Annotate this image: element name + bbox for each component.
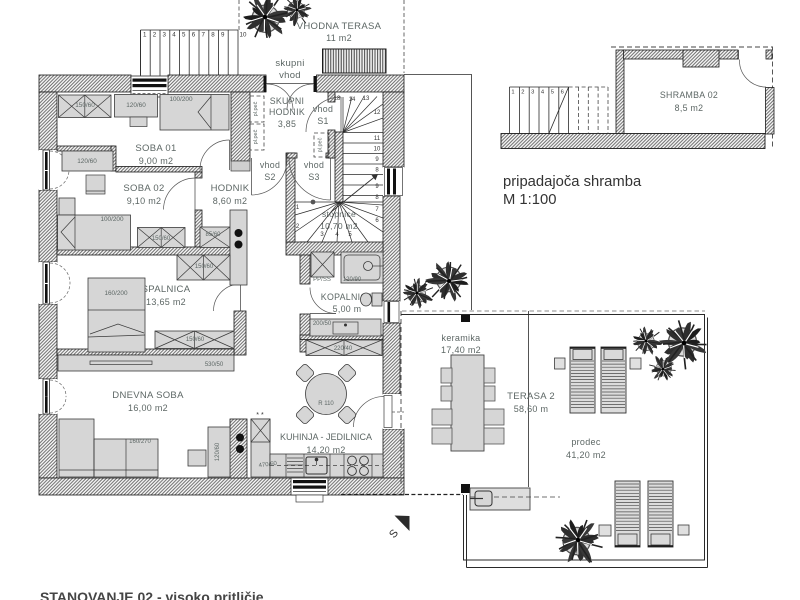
svg-text:TERASA 2: TERASA 2 <box>507 391 555 402</box>
svg-text:4: 4 <box>172 32 176 39</box>
svg-text:5: 5 <box>551 90 554 96</box>
svg-text:10: 10 <box>240 32 247 39</box>
svg-text:530/50: 530/50 <box>205 362 224 368</box>
svg-text:150/60: 150/60 <box>195 264 214 270</box>
svg-text:S2: S2 <box>264 172 275 182</box>
svg-text:85/60: 85/60 <box>205 232 221 238</box>
svg-text:150/60: 150/60 <box>75 102 95 109</box>
svg-text:160/200: 160/200 <box>104 290 128 297</box>
svg-text:prodec: prodec <box>571 437 601 447</box>
svg-text:1: 1 <box>511 90 514 96</box>
svg-text:3: 3 <box>162 32 166 39</box>
svg-text:11 m2: 11 m2 <box>326 33 352 43</box>
svg-text:SKUPNI: SKUPNI <box>270 96 305 106</box>
svg-text:13: 13 <box>363 96 370 102</box>
svg-text:10,70 m2: 10,70 m2 <box>320 221 358 231</box>
svg-text:5: 5 <box>182 32 186 39</box>
svg-text:pl.peč: pl.peč <box>318 137 324 152</box>
svg-text:vhod: vhod <box>313 104 333 114</box>
svg-text:pl.peč: pl.peč <box>253 101 259 116</box>
svg-text:150/60: 150/60 <box>152 236 171 242</box>
svg-text:keramika: keramika <box>442 333 481 343</box>
svg-text:3: 3 <box>531 90 534 96</box>
svg-text:S1: S1 <box>317 116 328 126</box>
svg-text:R 110: R 110 <box>318 401 334 407</box>
svg-text:2: 2 <box>153 32 157 39</box>
svg-text:100/200: 100/200 <box>100 216 124 223</box>
svg-text:SHRAMBA 02: SHRAMBA 02 <box>660 90 718 100</box>
svg-text:HODNIK: HODNIK <box>269 107 305 117</box>
svg-text:6: 6 <box>192 32 196 39</box>
svg-text:9,00 m2: 9,00 m2 <box>139 156 174 166</box>
svg-text:120/90: 120/90 <box>343 277 362 283</box>
svg-text:vhod: vhod <box>260 160 280 170</box>
svg-text:11: 11 <box>374 136 381 142</box>
svg-text:* *: * * <box>256 412 264 419</box>
svg-text:7: 7 <box>201 32 205 39</box>
svg-text:100/200: 100/200 <box>169 96 193 103</box>
svg-text:8,60 m2: 8,60 m2 <box>213 196 248 206</box>
svg-text:pl.peč: pl.peč <box>253 129 259 144</box>
svg-text:160/270: 160/270 <box>129 439 151 445</box>
svg-text:1: 1 <box>143 32 147 39</box>
svg-text:58,60 m: 58,60 m <box>514 404 549 414</box>
svg-text:10: 10 <box>374 147 381 153</box>
svg-text:SOBA 02: SOBA 02 <box>123 183 164 194</box>
svg-text:vhod: vhod <box>279 70 301 81</box>
svg-text:8,5 m2: 8,5 m2 <box>675 103 704 113</box>
svg-text:14: 14 <box>349 97 356 103</box>
svg-text:150/60: 150/60 <box>186 337 205 343</box>
svg-text:220/40: 220/40 <box>334 346 353 352</box>
svg-text:200/50: 200/50 <box>313 321 332 327</box>
svg-text:14,20 m2: 14,20 m2 <box>306 445 345 455</box>
svg-text:120/60: 120/60 <box>126 102 146 109</box>
svg-text:120/60: 120/60 <box>215 442 221 461</box>
svg-text:18: 18 <box>334 96 341 102</box>
svg-text:HODNIK: HODNIK <box>211 183 250 194</box>
svg-text:3,85: 3,85 <box>278 119 296 129</box>
svg-text:17,40 m2: 17,40 m2 <box>441 345 481 355</box>
svg-text:120/60: 120/60 <box>77 158 97 165</box>
svg-text:41,20 m2: 41,20 m2 <box>566 450 606 460</box>
svg-text:DNEVNA SOBA: DNEVNA SOBA <box>112 390 184 401</box>
svg-text:STANOVANJE 02 - visoko pritlič: STANOVANJE 02 - visoko pritličje <box>40 589 264 600</box>
svg-text:13,65 m2: 13,65 m2 <box>146 297 186 307</box>
svg-text:12: 12 <box>374 110 381 116</box>
svg-text:vhod: vhod <box>304 160 324 170</box>
svg-text:VHODNA TERASA: VHODNA TERASA <box>297 21 382 32</box>
svg-text:S3: S3 <box>308 172 319 182</box>
svg-text:16,00 m2: 16,00 m2 <box>128 403 168 413</box>
svg-text:M 1:100: M 1:100 <box>503 192 556 208</box>
svg-text:SOBA 01: SOBA 01 <box>135 143 176 154</box>
svg-text:KUHINJA - JEDILNICA: KUHINJA - JEDILNICA <box>280 432 372 442</box>
svg-text:SPALNICA: SPALNICA <box>142 284 191 295</box>
svg-text:9: 9 <box>221 32 225 39</box>
svg-text:8: 8 <box>211 32 215 39</box>
svg-text:PP/SS: PP/SS <box>313 277 331 283</box>
svg-text:9,10 m2: 9,10 m2 <box>127 196 162 206</box>
svg-text:6: 6 <box>561 90 564 96</box>
svg-text:5,00 m: 5,00 m <box>333 304 362 314</box>
svg-text:skupni: skupni <box>275 58 304 69</box>
svg-text:2: 2 <box>521 90 524 96</box>
svg-text:pripadajoča shramba: pripadajoča shramba <box>503 174 642 190</box>
